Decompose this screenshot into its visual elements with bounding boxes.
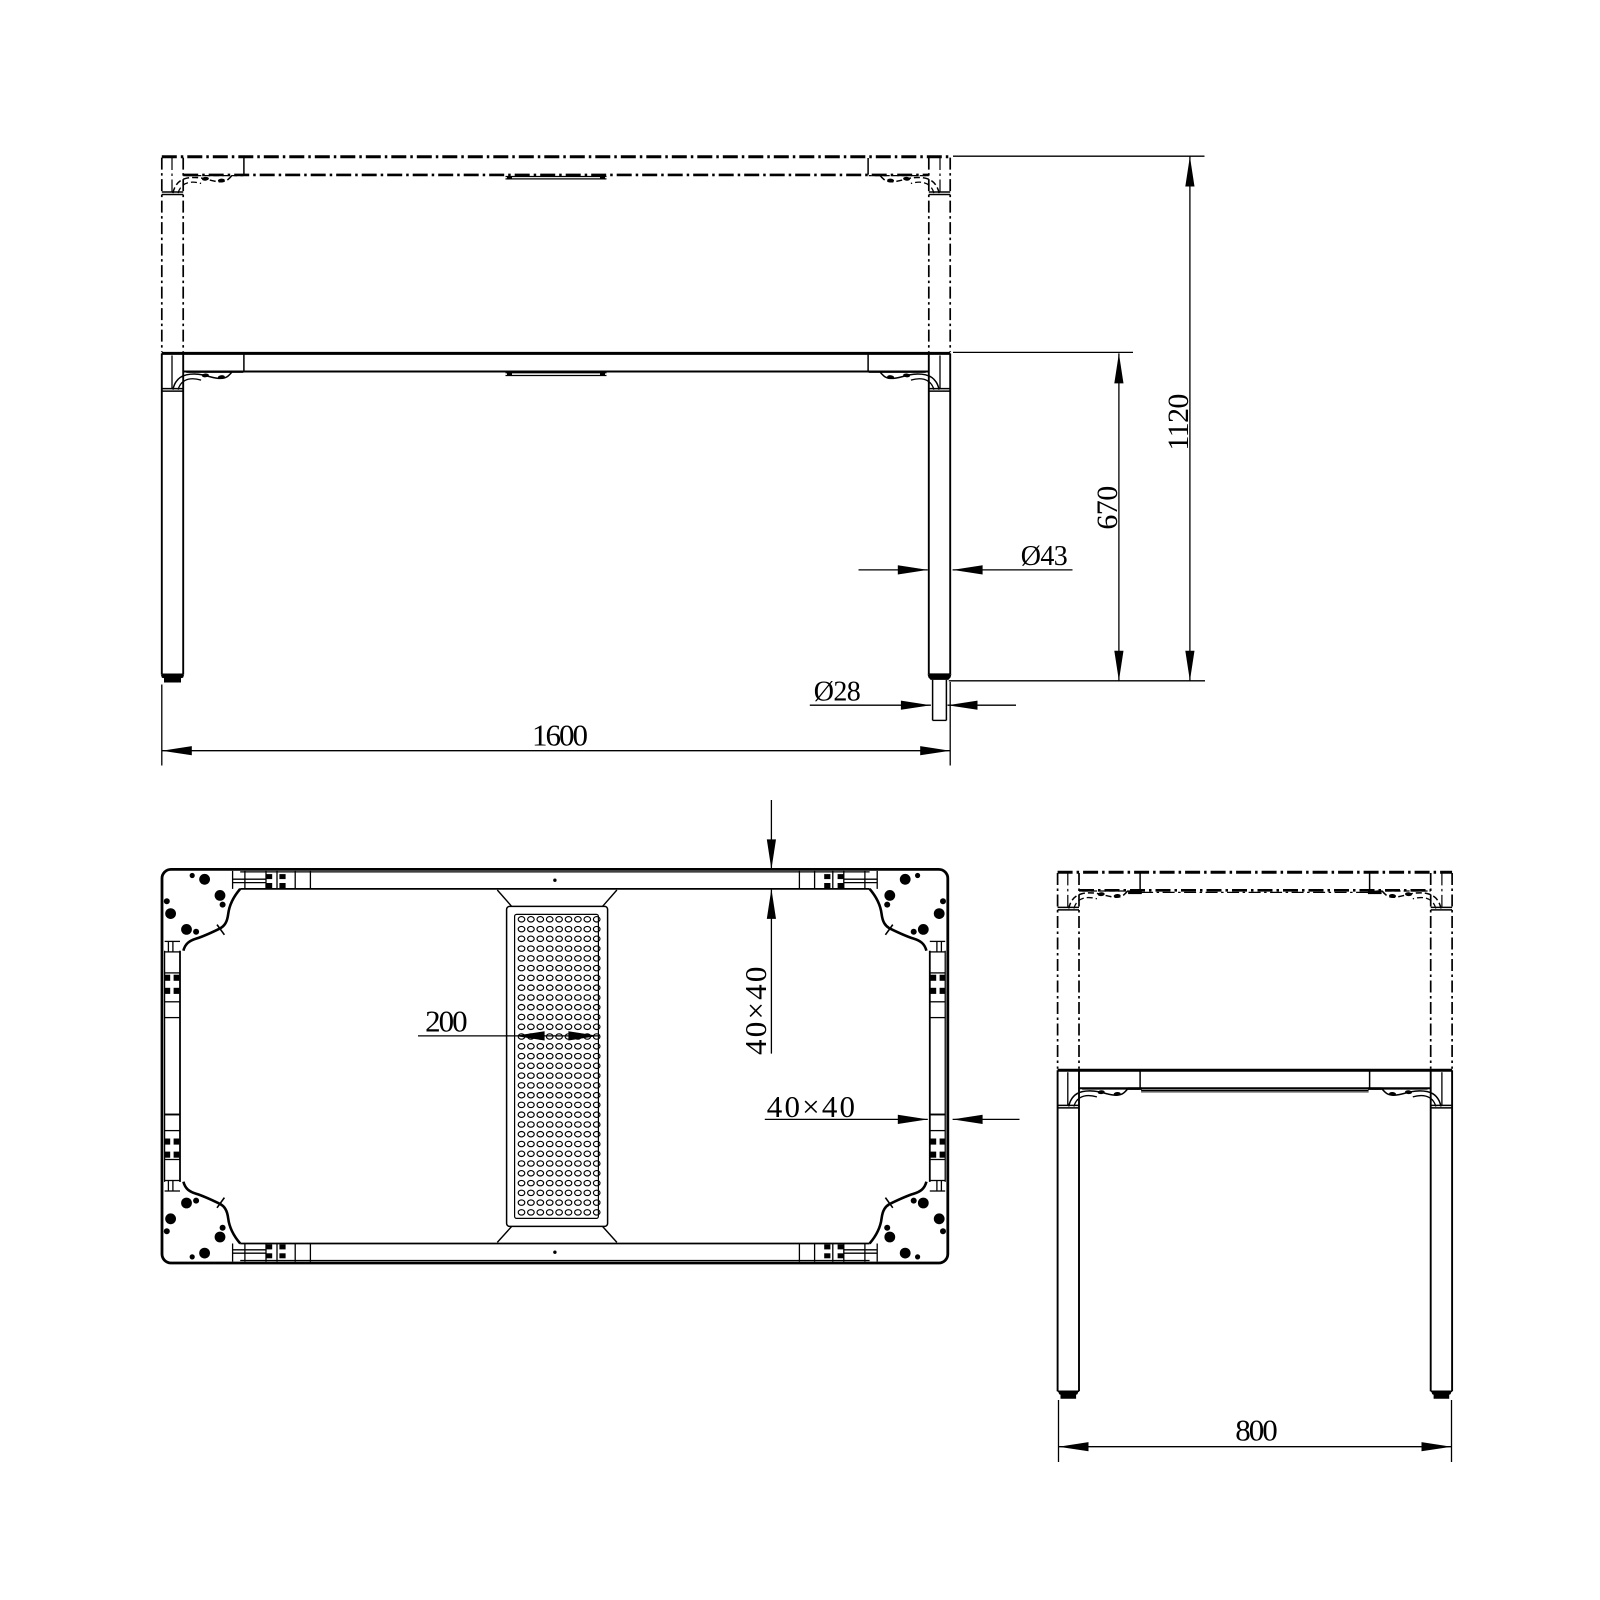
svg-text:670: 670 [1091, 486, 1124, 529]
svg-text:1120: 1120 [1162, 394, 1195, 451]
svg-text:800: 800 [1235, 1413, 1277, 1448]
svg-text:200: 200 [425, 1003, 467, 1038]
svg-text:40×40: 40×40 [767, 1089, 857, 1124]
svg-text:Ø43: Ø43 [1021, 541, 1067, 572]
svg-text:1600: 1600 [532, 717, 588, 752]
svg-text:Ø28: Ø28 [814, 676, 860, 707]
svg-text:40×40: 40×40 [738, 964, 773, 1054]
